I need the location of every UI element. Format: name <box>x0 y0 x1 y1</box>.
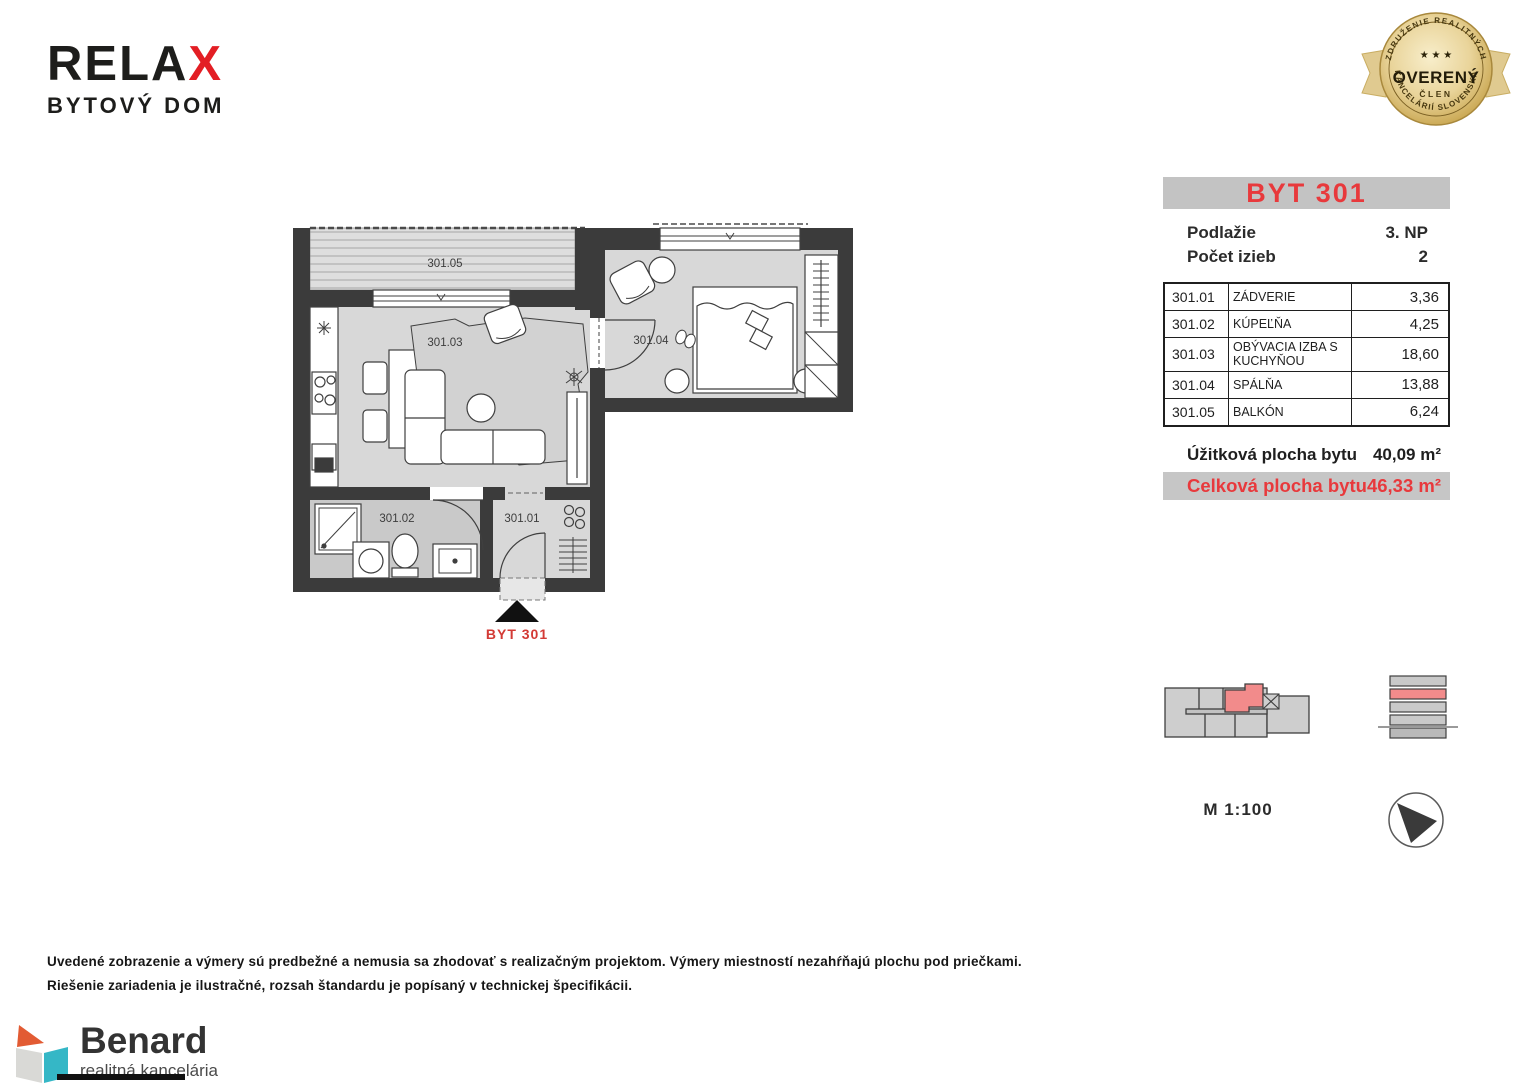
bedroom-window <box>653 224 808 250</box>
table-row: 301.03 OBÝVACIA IZBA S KUCHYŇOU 18,60 <box>1165 338 1448 372</box>
total-area-row: Celková plocha bytu 46,33 m² <box>1163 472 1450 500</box>
table-row: 301.05 BALKÓN 6,24 <box>1165 399 1448 425</box>
badge-title: OVERENÝ <box>1393 68 1480 87</box>
scale-label: M 1:100 <box>1178 800 1298 820</box>
meta-row-floor: Podlažie 3. NP <box>1187 221 1446 245</box>
usable-area-row: Úžitková plocha bytu 40,09 m² <box>1163 441 1450 469</box>
floor-elevation-diagram <box>1378 674 1458 748</box>
total-area-label: Celková plocha bytu <box>1187 474 1367 498</box>
building-locator-diagram <box>1161 676 1313 748</box>
room-name: BALKÓN <box>1228 399 1352 425</box>
room-count-value: 2 <box>1419 245 1428 269</box>
room-code: 301.03 <box>1165 346 1228 362</box>
tall-cabinet <box>567 392 587 484</box>
toilet <box>392 534 418 577</box>
relax-logo-black: RELA <box>47 37 188 91</box>
benard-text: Benard realitná kancelária <box>80 1022 218 1081</box>
label-living: 301.03 <box>427 337 462 349</box>
total-area-value: 46,33 m² <box>1367 474 1441 498</box>
balcony-window <box>373 290 510 307</box>
floor-value: 3. NP <box>1385 221 1428 245</box>
table-row: 301.02 KÚPEĽŇA 4,25 <box>1165 311 1448 338</box>
certified-member-badge: ZDRUŽENIE REALITNÝCH KANCELÁRIÍ SLOVENSK… <box>1360 2 1512 134</box>
room-area: 3,36 <box>1352 289 1448 306</box>
room-name: SPÁLŇA <box>1228 372 1352 398</box>
flyer-page: { "brand": { "name_black": "RELA", "name… <box>0 0 1526 1080</box>
label-bathroom: 301.02 <box>379 513 414 525</box>
relax-logo-title: RELAX <box>47 40 225 89</box>
bed <box>693 287 797 393</box>
room-name: OBÝVACIA IZBA S KUCHYŇOU <box>1228 338 1352 371</box>
area-totals: Úžitková plocha bytu 40,09 m² Celková pl… <box>1163 441 1450 500</box>
washbasin <box>433 544 477 578</box>
room-code: 301.05 <box>1165 404 1228 420</box>
nightstand <box>665 369 689 393</box>
disclaimer: Uvedené zobrazenie a výmery sú predbežné… <box>47 950 1097 997</box>
room-area: 18,60 <box>1352 346 1448 363</box>
room-area: 6,24 <box>1352 403 1448 420</box>
coffee-table <box>467 394 495 422</box>
disclaimer-line-2: Riešenie zariadenia je ilustračné, rozsa… <box>47 974 1097 998</box>
table-row: 301.01 ZÁDVERIE 3,36 <box>1165 284 1448 311</box>
room-code: 301.04 <box>1165 377 1228 393</box>
locator-staircase-icon <box>1263 694 1279 709</box>
relax-logo: RELAX BYTOVÝ DOM <box>47 40 225 119</box>
usable-area-label: Úžitková plocha bytu <box>1187 443 1357 467</box>
badge-subtitle: ČLEN <box>1419 88 1452 99</box>
room-name: KÚPEĽŇA <box>1228 311 1352 337</box>
label-balcony: 301.05 <box>427 258 462 270</box>
room-count-label: Počet izieb <box>1187 245 1276 269</box>
apartment-meta: Podlažie 3. NP Počet izieb 2 <box>1163 221 1450 269</box>
nightstand <box>649 257 675 283</box>
washing-machine <box>353 542 389 578</box>
apartment-title: BYT 301 <box>1246 178 1367 209</box>
room-code: 301.02 <box>1165 316 1228 332</box>
benard-name: Benard <box>80 1022 218 1061</box>
room-area: 4,25 <box>1352 316 1448 333</box>
floor-label: Podlažie <box>1187 221 1256 245</box>
entrance-marker-arrow <box>495 600 539 622</box>
room-code: 301.01 <box>1165 289 1228 305</box>
entrance-marker-label: BYT 301 <box>486 626 548 642</box>
elevation-current-floor <box>1390 689 1446 699</box>
room-table: 301.01 ZÁDVERIE 3,36 301.02 KÚPEĽŇA 4,25… <box>1163 282 1450 427</box>
wardrobe <box>805 255 838 398</box>
usable-area-value: 40,09 m² <box>1373 443 1441 467</box>
badge-stars-icon: ★ ★ ★ <box>1420 50 1452 61</box>
floor-plan: 301.05 301.03 301.04 301.02 301.01 BYT 3… <box>293 222 880 647</box>
north-arrow-compass <box>1386 790 1446 850</box>
apartment-title-bar: BYT 301 <box>1163 177 1450 209</box>
meta-row-rooms: Počet izieb 2 <box>1187 245 1446 269</box>
relax-logo-x: X <box>188 37 223 91</box>
table-row: 301.04 SPÁLŇA 13,88 <box>1165 372 1448 399</box>
room-area: 13,88 <box>1352 376 1448 393</box>
label-hall: 301.01 <box>504 513 539 525</box>
room-name: ZÁDVERIE <box>1228 284 1352 310</box>
footer-strip <box>57 1074 185 1080</box>
label-bedroom: 301.04 <box>633 335 669 347</box>
relax-logo-subtitle: BYTOVÝ DOM <box>47 93 225 119</box>
disclaimer-line-1: Uvedené zobrazenie a výmery sú predbežné… <box>47 950 1097 974</box>
apartment-info-panel: BYT 301 Podlažie 3. NP Počet izieb 2 301… <box>1163 177 1450 500</box>
kitchen-counter <box>310 307 338 487</box>
